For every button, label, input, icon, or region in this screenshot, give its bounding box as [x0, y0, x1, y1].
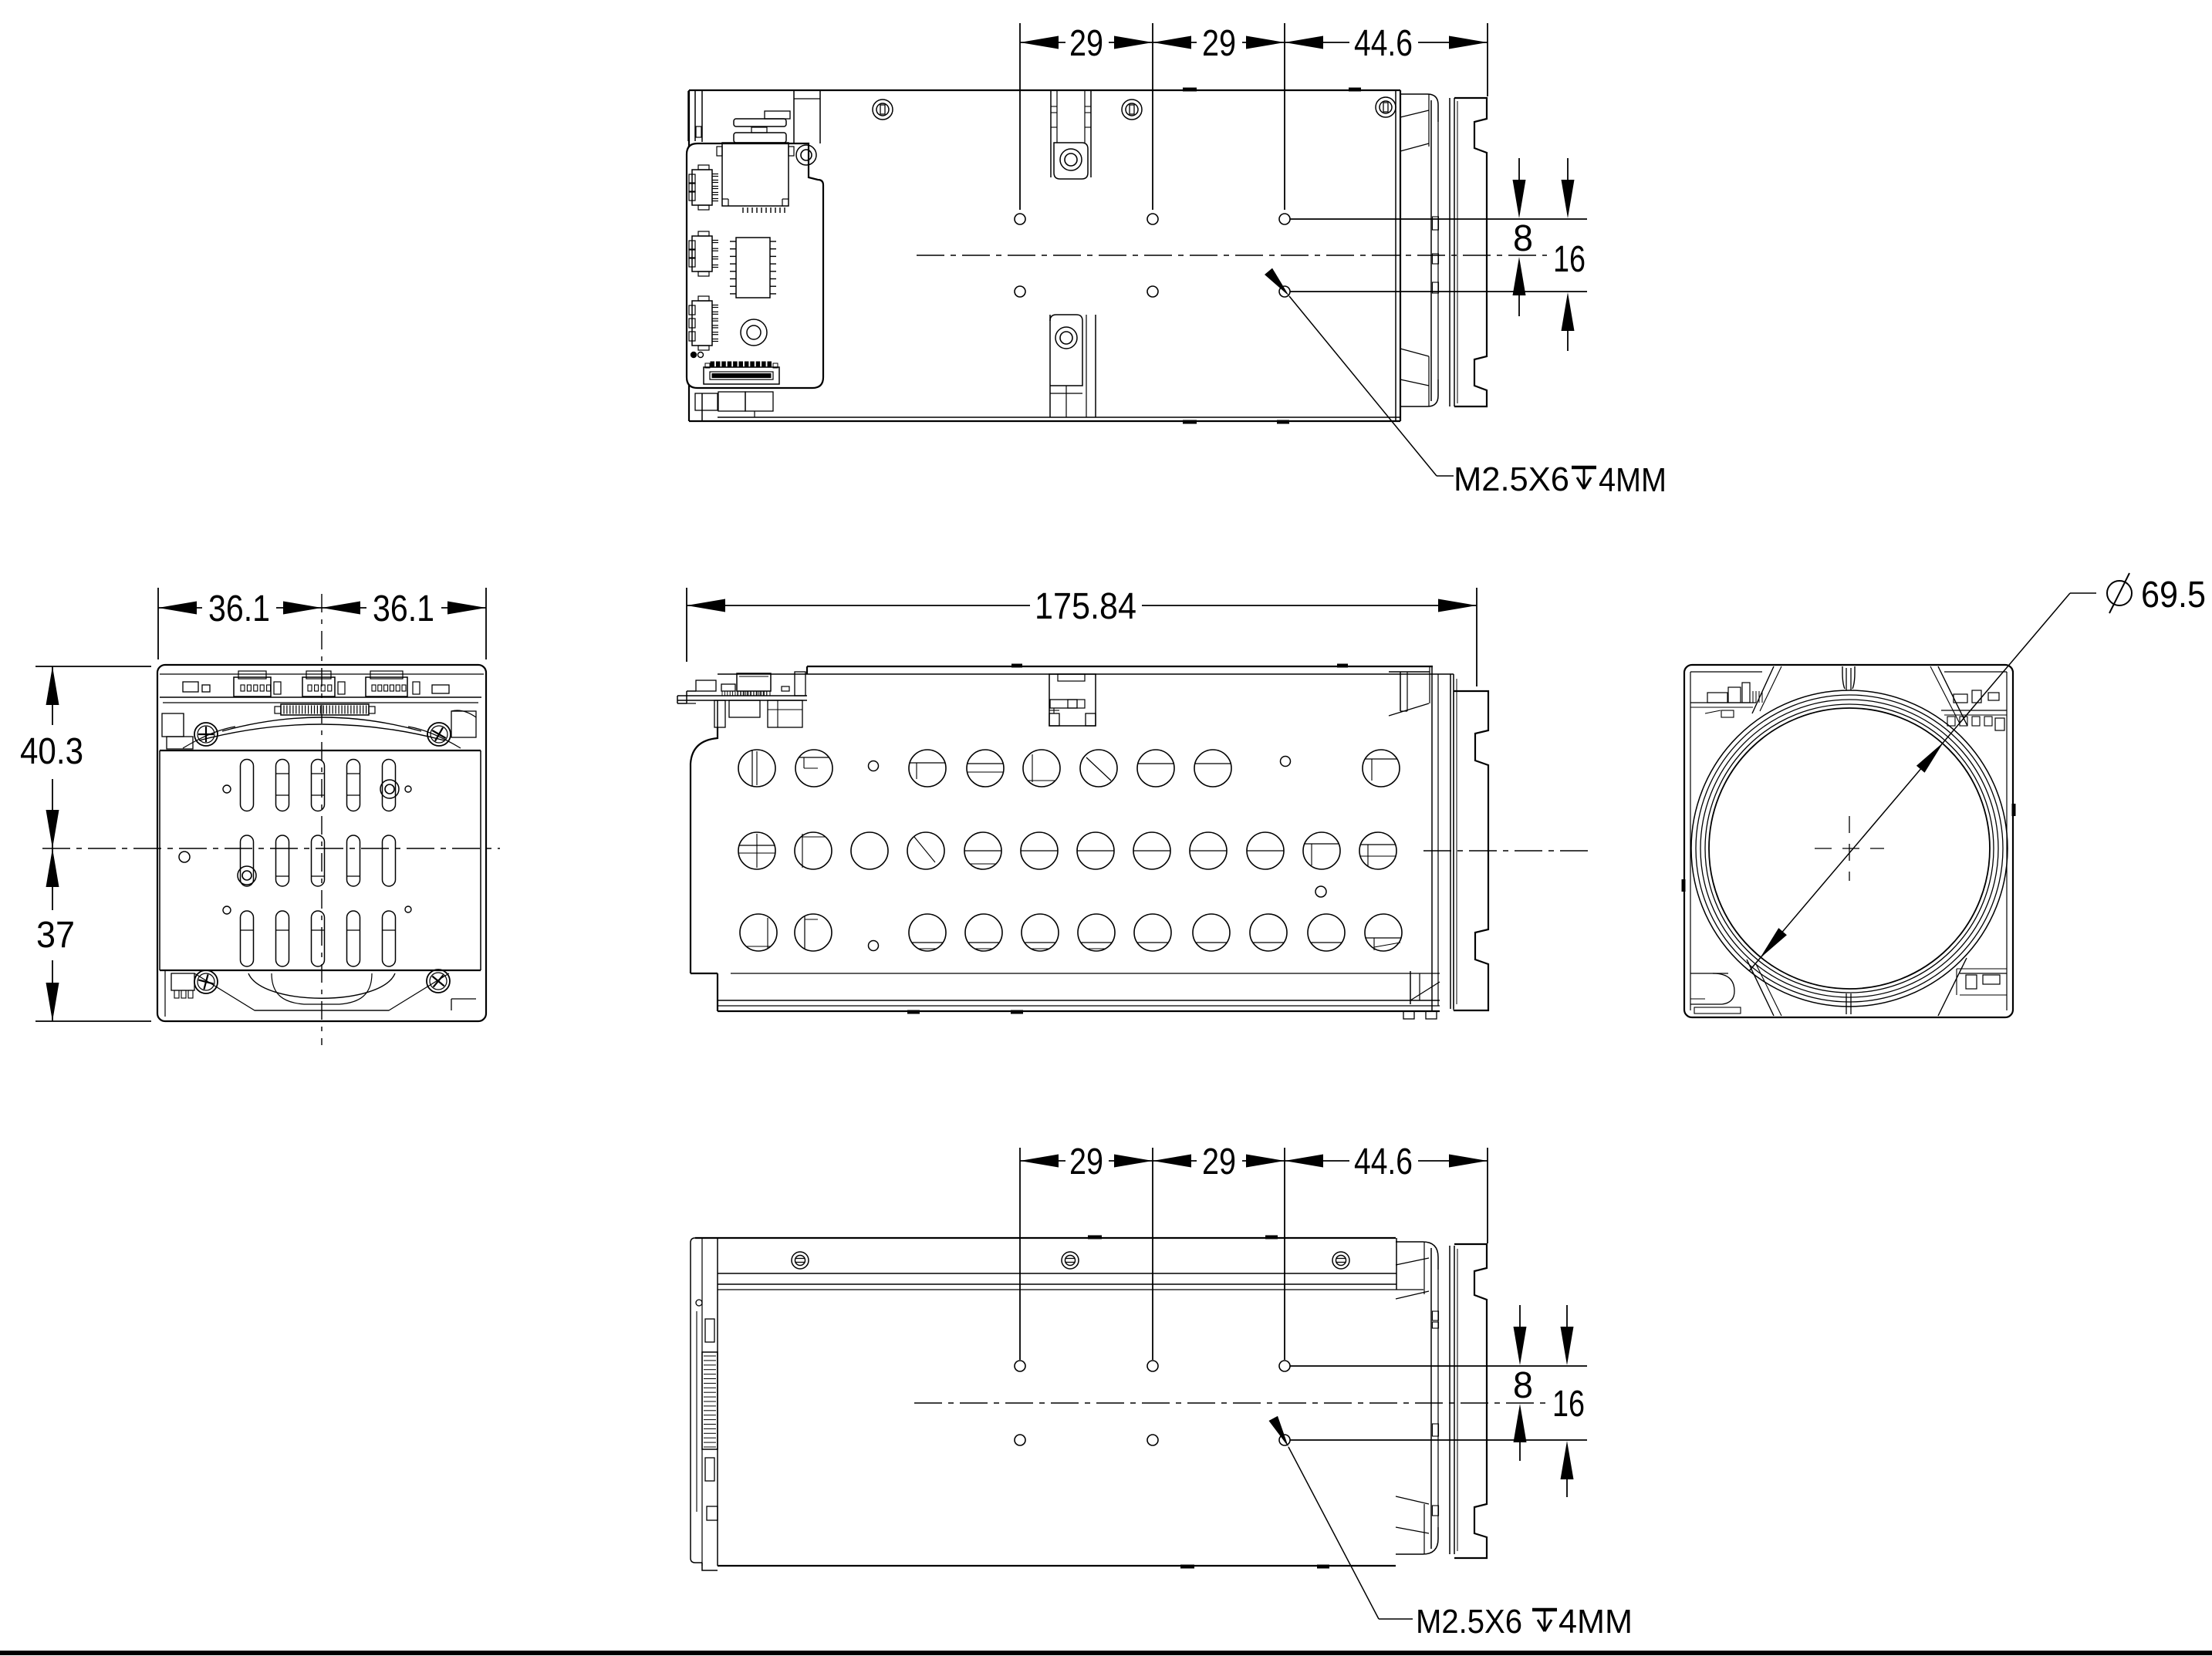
- svg-text:4MM: 4MM: [1559, 1603, 1633, 1641]
- svg-text:69.5: 69.5: [2141, 575, 2206, 616]
- svg-text:8: 8: [1513, 1365, 1533, 1406]
- svg-text:29: 29: [1069, 1142, 1103, 1182]
- svg-text:29: 29: [1202, 1142, 1236, 1182]
- svg-text:M2.5X6: M2.5X6: [1454, 460, 1569, 498]
- svg-text:175.84: 175.84: [1035, 586, 1136, 627]
- svg-text:44.6: 44.6: [1354, 1142, 1413, 1182]
- svg-text:29: 29: [1069, 23, 1103, 64]
- svg-text:8: 8: [1513, 218, 1533, 259]
- svg-text:37: 37: [36, 915, 75, 956]
- svg-text:M2.5X6: M2.5X6: [1416, 1603, 1522, 1641]
- svg-text:36.1: 36.1: [373, 589, 434, 629]
- svg-text:40.3: 40.3: [20, 731, 83, 772]
- svg-text:16: 16: [1553, 239, 1586, 280]
- svg-text:36.1: 36.1: [208, 589, 270, 629]
- svg-text:29: 29: [1202, 23, 1236, 64]
- svg-text:4MM: 4MM: [1599, 461, 1667, 499]
- svg-text:16: 16: [1552, 1384, 1585, 1425]
- svg-text:44.6: 44.6: [1354, 23, 1413, 64]
